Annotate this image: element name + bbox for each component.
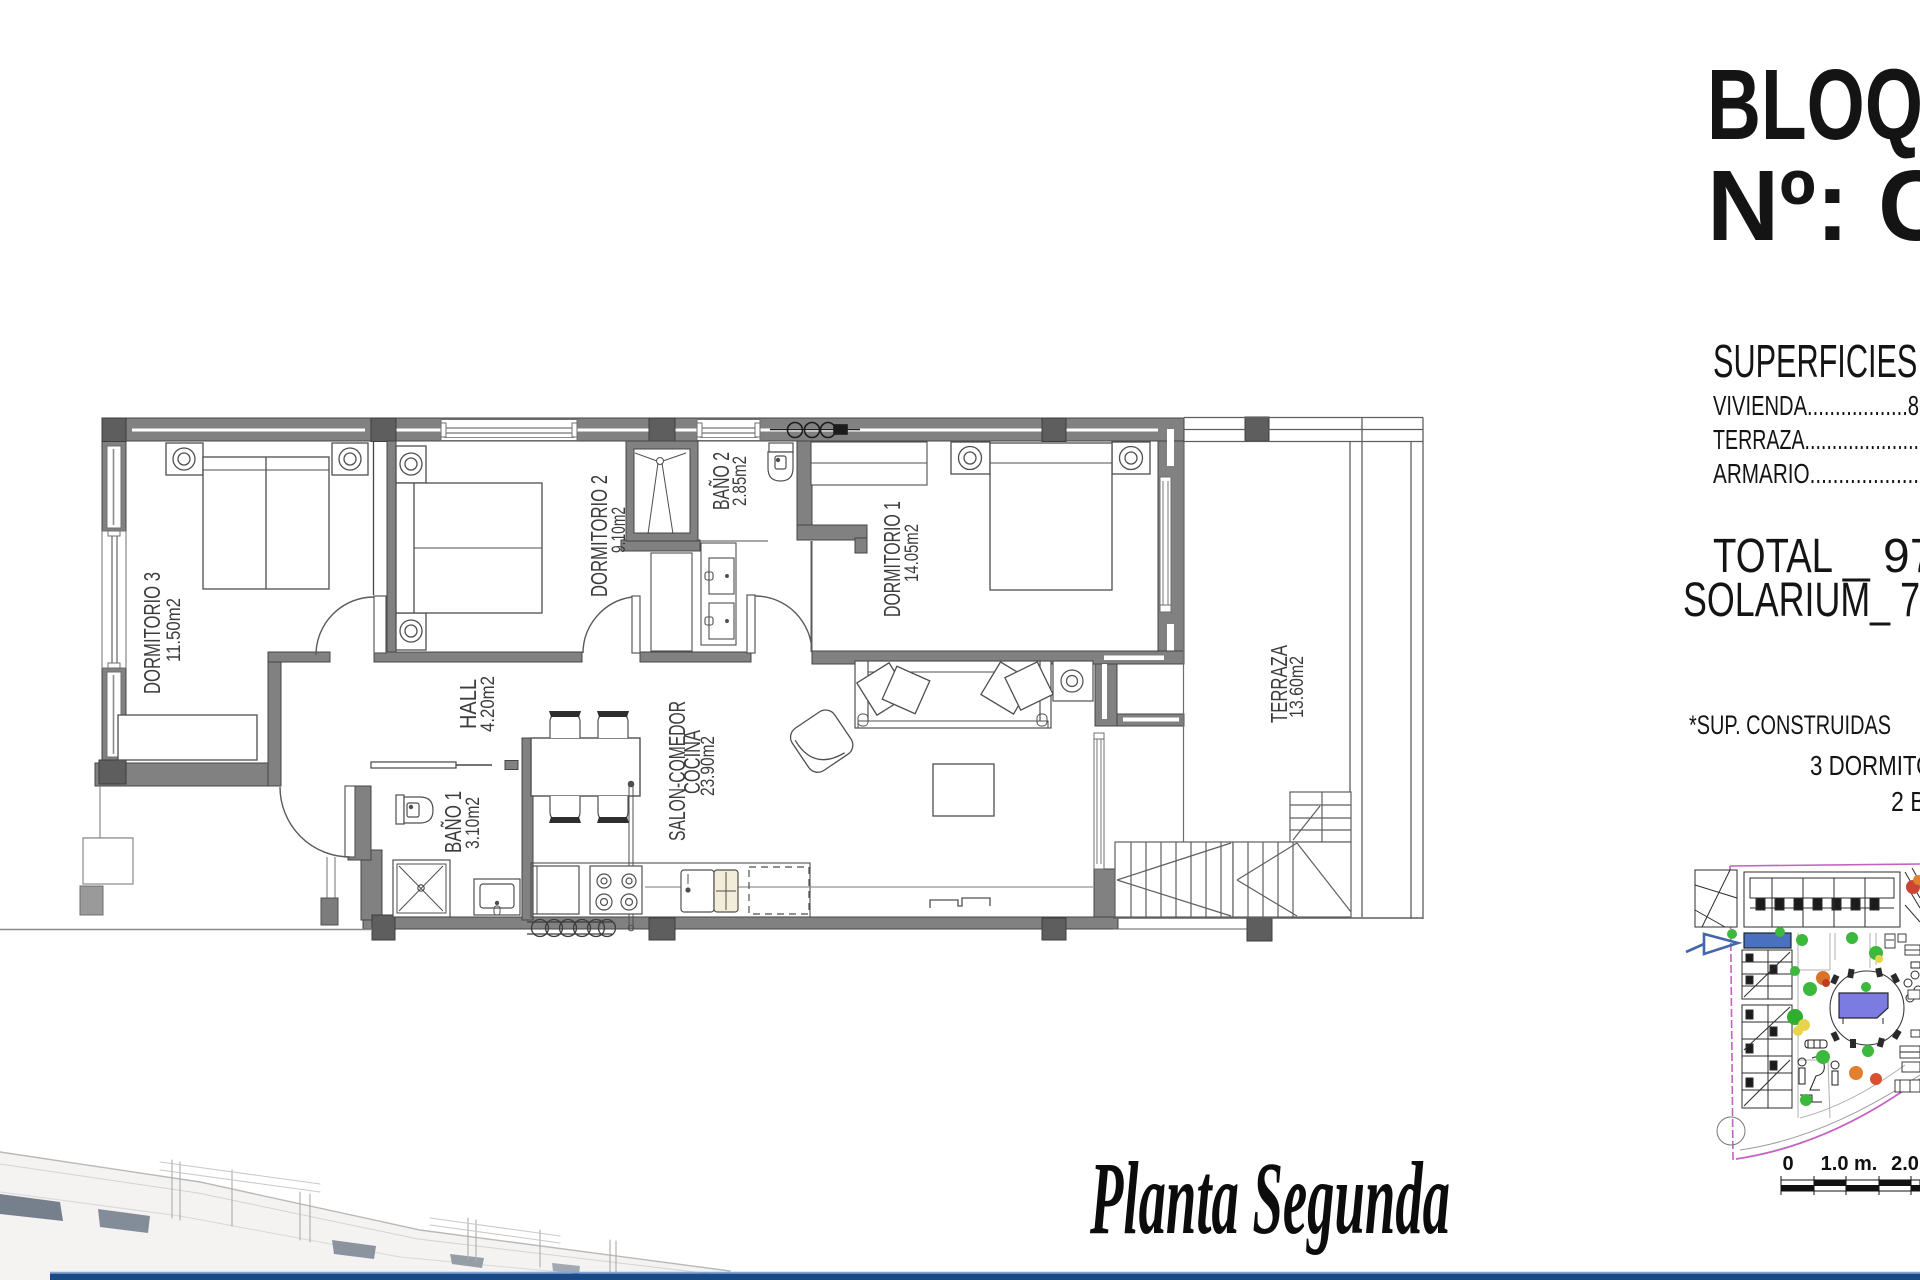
svg-text:0: 0 [1782,1153,1793,1175]
svg-text:Nº:: Nº: [1707,150,1849,262]
svg-text:DORMITORIO 3: DORMITORIO 3 [139,572,165,694]
svg-text:*SUP. CONSTRUIDAS: *SUP. CONSTRUIDAS [1689,710,1891,740]
svg-text:2.0: 2.0 [1891,1153,1919,1175]
svg-text:11.50m2: 11.50m2 [164,598,185,662]
svg-text:23.90m2: 23.90m2 [698,736,719,796]
svg-text:Planta Segunda: Planta Segunda [1089,1141,1450,1256]
svg-text:13.60m2: 13.60m2 [1287,656,1308,718]
svg-text:TERRAZA.....................: TERRAZA..................... [1713,424,1919,455]
svg-text:BLOQU: BLOQU [1707,49,1920,161]
svg-text:VIVIENDA..................8: VIVIENDA..................8 [1713,390,1919,421]
svg-text:SUPERFICIES U: SUPERFICIES U [1713,335,1920,387]
svg-text:9.10m2: 9.10m2 [609,507,630,553]
svg-text:SOLARIUM_ 7: SOLARIUM_ 7 [1683,574,1920,627]
svg-text:C: C [1878,150,1920,262]
svg-text:4.20m2: 4.20m2 [478,676,499,732]
svg-text:3 DORMITORIOS: 3 DORMITORIOS [1810,750,1920,781]
svg-text:3.10m2: 3.10m2 [463,797,484,849]
svg-text:ARMARIO...................: ARMARIO................... [1713,458,1919,489]
svg-text:14.05m2: 14.05m2 [902,524,923,582]
svg-text:2.85m2: 2.85m2 [730,456,751,506]
svg-text:2 BAÑOS: 2 BAÑOS [1891,786,1920,817]
svg-text:1.0 m.: 1.0 m. [1821,1153,1878,1175]
